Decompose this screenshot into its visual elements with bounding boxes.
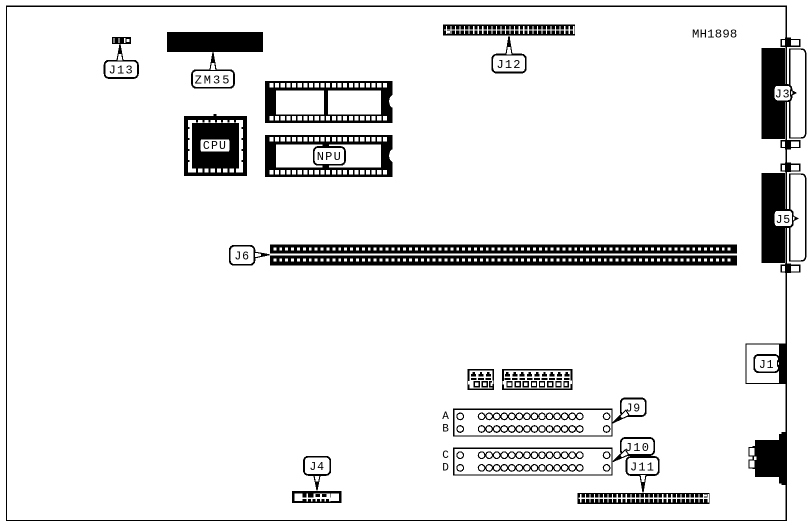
svg-text:NPU: NPU	[317, 150, 342, 164]
svg-text:J13: J13	[109, 64, 134, 78]
svg-text:J6: J6	[234, 251, 249, 264]
svg-text:J4: J4	[309, 461, 324, 474]
svg-text:D: D	[442, 463, 449, 475]
svg-text:J3: J3	[775, 88, 790, 101]
svg-text:J1: J1	[759, 359, 774, 372]
svg-text:J10: J10	[625, 441, 650, 455]
svg-text:B: B	[442, 424, 449, 436]
svg-text:ZM35: ZM35	[195, 73, 232, 87]
svg-text:C: C	[442, 450, 449, 462]
svg-text:MH1898: MH1898	[692, 28, 737, 42]
svg-text:J12: J12	[496, 58, 521, 72]
svg-text:CPU: CPU	[203, 140, 227, 153]
svg-text:A: A	[442, 411, 449, 423]
svg-text:J11: J11	[630, 460, 655, 474]
svg-text:J5: J5	[776, 214, 791, 227]
